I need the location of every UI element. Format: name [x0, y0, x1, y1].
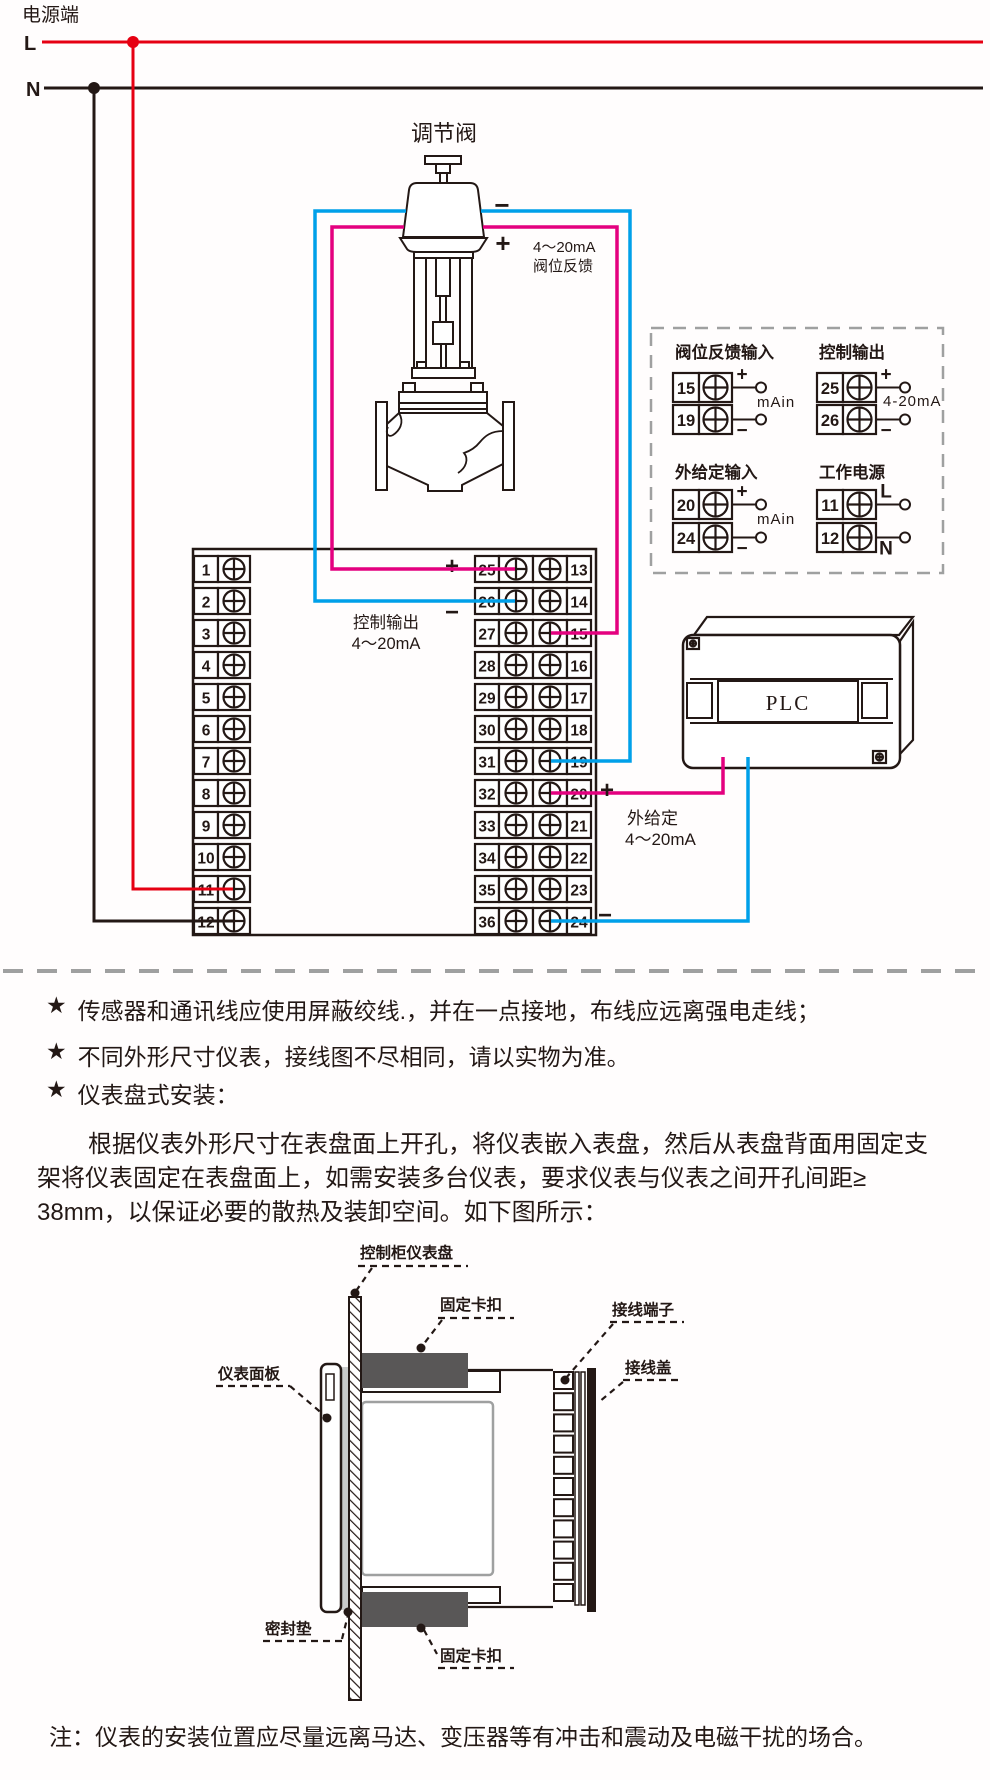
terminal-number: 20 [677, 497, 695, 515]
terminal-number: 36 [478, 915, 496, 932]
terminal-number: 8 [202, 787, 211, 804]
io-open-terminal [900, 500, 910, 510]
terminal-number: 25 [478, 563, 496, 580]
terminal-number: 15 [570, 627, 588, 644]
front-bezel [321, 1364, 341, 1612]
terminal-number: 16 [570, 659, 588, 676]
io-polarity-sign: − [736, 421, 747, 442]
terminal-number: 20 [570, 787, 587, 804]
io-group-title: 控制输出 [819, 342, 885, 362]
terminal-number: 34 [478, 851, 496, 868]
io-polarity-sign: − [880, 421, 891, 442]
paragraph-line-3: 38mm，以保证必要的散热及装卸空间。如下图所示： [37, 1192, 608, 1227]
paragraph-line-1: 根据仪表外形尺寸在表盘面上开孔，将仪表嵌入表盘，然后从表盘背面用固定支 [88, 1124, 928, 1159]
setpoint-labels: + − 外给定 4～20mA [598, 777, 697, 929]
screw-terminal-icon [873, 751, 886, 763]
screw-terminal-icon [218, 652, 250, 678]
io-open-terminal [756, 533, 766, 543]
screw-terminal-icon [499, 716, 533, 742]
control-output-label: 控制输出 [353, 613, 419, 632]
io-open-terminal [756, 383, 766, 393]
mounting-diagram: 控制柜仪表盘 固定卡扣 仪表面板 接线端子 [0, 1230, 990, 1750]
screw-terminal-icon [533, 588, 567, 614]
strip-terminal-box [554, 1563, 573, 1580]
screw-terminal-icon [699, 405, 732, 434]
screw-terminal-icon [499, 908, 533, 934]
io-open-terminal [756, 500, 766, 510]
screw-terminal-icon [533, 876, 567, 902]
terminal-number: 15 [677, 380, 695, 398]
screw-terminal-icon [533, 556, 567, 582]
setpoint-name-label: 外给定 [627, 809, 678, 828]
wiring-diagram: 电源端 L N 12513226143271542816529176301873… [0, 0, 990, 980]
svg-text:固定卡扣: 固定卡扣 [440, 1646, 502, 1665]
svg-text:仪表面板: 仪表面板 [217, 1364, 281, 1383]
terminal-number: 22 [570, 851, 587, 868]
io-polarity-sign: + [736, 365, 747, 386]
screw-terminal-icon [499, 876, 533, 902]
terminal-number: 4 [202, 659, 211, 676]
terminal-number: 33 [478, 819, 496, 836]
line-n-label: N [26, 79, 40, 101]
screw-terminal-icon [843, 405, 876, 434]
star-icon: ★ [46, 992, 67, 1019]
io-group-title: 外给定输入 [675, 462, 758, 482]
callout-bottom-clip: 固定卡扣 [417, 1624, 515, 1669]
screw-terminal-icon [499, 844, 533, 870]
screw-terminal-icon [499, 652, 533, 678]
io-group-0: 阀位反馈输入15+19−mAin [673, 342, 795, 442]
screw-terminal-icon [499, 812, 533, 838]
io-polarity-sign: + [736, 482, 747, 503]
terminal-number: 35 [478, 883, 496, 900]
screw-terminal-icon [218, 748, 250, 774]
screw-terminal-icon [843, 523, 876, 552]
instrument-case [359, 1353, 553, 1627]
io-open-terminal [900, 383, 910, 393]
terminal-number: 17 [570, 691, 587, 708]
screw-terminal-icon [499, 620, 533, 646]
note-bullet-2-text: 不同外形尺寸仪表，接线图不尽相同，请以实物为准。 [78, 1038, 630, 1072]
terminal-number: 2 [202, 595, 211, 612]
setpoint-range-label: 4～20mA [625, 830, 697, 849]
screw-terminal-icon [699, 373, 732, 402]
terminal-number: 1 [202, 563, 211, 580]
wiring-cover-bar [587, 1368, 596, 1612]
strip-terminal-box [554, 1457, 573, 1474]
strip-terminal-box [554, 1542, 573, 1559]
valve-plus: + [495, 228, 510, 258]
terminal-number: 13 [570, 563, 588, 580]
line-l-label: L [24, 33, 36, 55]
screw-terminal-icon [699, 523, 732, 552]
screw-terminal-icon [533, 812, 567, 838]
io-mid-label: 4-20mA [883, 393, 942, 410]
valve-minus: − [494, 190, 509, 220]
io-group-2: 外给定输入20+24−mAin [673, 462, 795, 560]
control-output-range: 4～20mA [352, 635, 421, 653]
terminal-number: 24 [570, 915, 588, 932]
io-open-terminal [900, 533, 910, 543]
control-output-minus: − [445, 599, 459, 626]
terminal-number: 31 [478, 755, 496, 772]
terminal-number: 32 [478, 787, 495, 804]
io-open-terminal [900, 415, 910, 425]
io-group-title: 阀位反馈输入 [675, 342, 775, 362]
terminal-number: 24 [677, 530, 696, 548]
io-polarity-sign: + [880, 365, 891, 386]
terminal-number: 14 [570, 595, 588, 612]
svg-text:密封垫: 密封垫 [265, 1619, 312, 1638]
terminal-number: 27 [478, 627, 495, 644]
terminal-number: 26 [478, 595, 496, 612]
screw-terminal-icon [218, 780, 250, 806]
terminal-number: 23 [570, 883, 588, 900]
terminal-number: 30 [478, 723, 495, 740]
terminal-number: 19 [570, 755, 588, 772]
io-mid-label: mAin [757, 394, 795, 411]
feedback-name-label: 阀位反馈 [533, 258, 593, 275]
top-clip [359, 1353, 468, 1388]
paragraph-line-2: 架将仪表固定在表盘面上，如需安装多台仪表，要求仪表与仪表之间开孔间距≥ [37, 1158, 866, 1193]
note-bullet-3: ★ 仪表盘式安装： [46, 1076, 239, 1110]
screw-terminal-icon [218, 844, 250, 870]
callout-cabinet-panel: 控制柜仪表盘 [351, 1243, 469, 1298]
plc-label: PLC [766, 691, 811, 715]
rear-terminal-strip [554, 1368, 596, 1612]
case-inner-body [362, 1402, 493, 1575]
feedback-range-label: 4～20mA [533, 239, 596, 256]
screw-terminal-icon [499, 780, 533, 806]
callout-top-clip: 固定卡扣 [417, 1295, 515, 1353]
star-icon: ★ [46, 1038, 67, 1065]
screw-terminal-icon [699, 490, 732, 519]
setpoint-plus: + [600, 777, 614, 804]
plc-box: PLC [683, 617, 913, 768]
power-title: 电源端 [22, 4, 79, 26]
screw-terminal-icon [533, 716, 567, 742]
terminal-number: 18 [570, 723, 588, 740]
callout-front-panel: 仪表面板 [216, 1364, 332, 1423]
callout-gasket: 密封垫 [263, 1608, 353, 1642]
svg-text:接线端子: 接线端子 [612, 1300, 675, 1319]
note-bullet-1: ★ 传感器和通讯线应使用屏蔽绞线.，并在一点接地，布线应远离强电走线； [46, 992, 820, 1026]
valve-title: 调节阀 [411, 121, 477, 146]
screw-terminal-icon [843, 490, 876, 519]
screw-terminal-icon [218, 556, 250, 582]
terminal-number: 6 [202, 723, 211, 740]
terminal-number: 3 [202, 627, 211, 644]
manual-page: 电源端 L N 12513226143271542816529176301873… [0, 0, 990, 1780]
terminal-number: 11 [198, 883, 215, 900]
strip-terminal-box [554, 1478, 573, 1495]
terminal-number: 25 [821, 380, 839, 398]
strip-terminal-box [554, 1436, 573, 1453]
note-bullet-3-text: 仪表盘式安装： [78, 1076, 239, 1110]
bottom-clip [359, 1592, 468, 1627]
strip-terminal-box [554, 1393, 573, 1410]
terminal-number: 9 [202, 819, 211, 836]
strip-terminal-box [554, 1499, 573, 1516]
io-group-3: 工作电源11L12N [817, 462, 910, 560]
regulating-valve [376, 156, 514, 491]
screw-terminal-icon [499, 684, 533, 710]
screw-terminal-icon [218, 812, 250, 838]
screw-terminal-icon [218, 684, 250, 710]
terminal-number: 7 [202, 755, 211, 772]
screw-terminal-icon [843, 373, 876, 402]
strip-terminal-box [554, 1414, 573, 1431]
io-group-title: 工作电源 [819, 462, 886, 482]
note-bullet-2: ★ 不同外形尺寸仪表，接线图不尽相同，请以实物为准。 [46, 1038, 630, 1072]
terminal-number: 12 [197, 915, 214, 932]
io-legend-panel: 阀位反馈输入15+19−mAin控制输出25+26−4-20mA外给定输入20+… [651, 328, 943, 573]
terminal-number: 11 [821, 497, 838, 515]
terminal-number: 28 [478, 659, 496, 676]
terminal-number: 26 [821, 412, 839, 430]
screw-terminal-icon [499, 748, 533, 774]
svg-text:接线盖: 接线盖 [625, 1358, 672, 1377]
star-icon: ★ [46, 1076, 67, 1103]
screw-terminal-icon [218, 588, 250, 614]
terminal-number: 29 [478, 691, 496, 708]
front-assembly [321, 1297, 361, 1700]
terminal-number: 5 [202, 691, 211, 708]
svg-text:固定卡扣: 固定卡扣 [440, 1295, 502, 1314]
terminal-number: 19 [677, 412, 695, 430]
callout-wiring-cover: 接线盖 [599, 1358, 682, 1402]
io-group-1: 控制输出25+26−4-20mA [817, 342, 942, 442]
terminal-number: 12 [821, 530, 839, 548]
io-polarity-sign: N [879, 539, 893, 560]
io-mid-label: mAin [757, 511, 795, 528]
io-polarity-sign: − [736, 539, 747, 560]
io-open-terminal [756, 415, 766, 425]
svg-text:控制柜仪表盘: 控制柜仪表盘 [360, 1243, 454, 1262]
strip-terminal-box [554, 1520, 573, 1537]
screw-terminal-icon [533, 844, 567, 870]
screw-terminal-icon [687, 638, 699, 649]
terminal-block: 1251322614327154281652917630187311983220… [193, 549, 596, 935]
screw-terminal-icon [218, 620, 250, 646]
note-bullet-1-text: 传感器和通讯线应使用屏蔽绞线.，并在一点接地，布线应远离强电走线； [78, 992, 820, 1026]
terminal-number: 21 [570, 819, 588, 836]
setpoint-minus: − [598, 902, 612, 929]
power-rails: 电源端 L N [22, 4, 983, 101]
screw-terminal-icon [533, 684, 567, 710]
screw-terminal-icon [218, 716, 250, 742]
terminal-number: 10 [197, 851, 214, 868]
io-polarity-sign: L [880, 482, 892, 503]
cabinet-panel-hatched [349, 1297, 361, 1700]
control-output-plus: + [445, 553, 459, 580]
screw-terminal-icon [533, 652, 567, 678]
strip-terminal-box [554, 1584, 573, 1601]
